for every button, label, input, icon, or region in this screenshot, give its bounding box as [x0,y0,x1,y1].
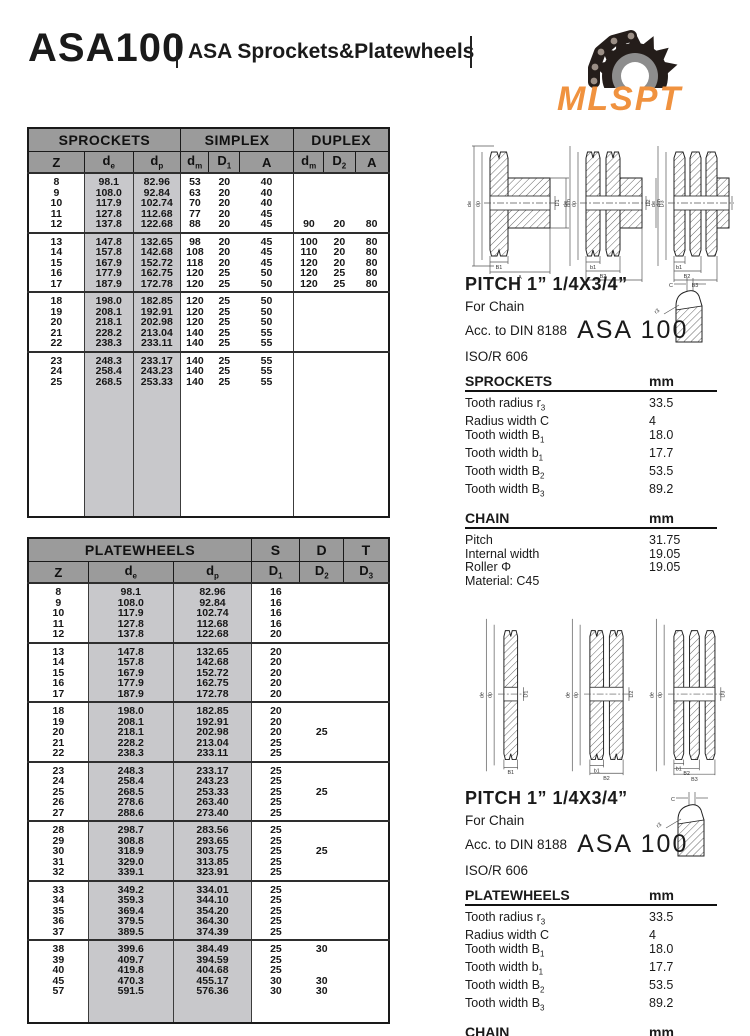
cell: 20 [252,657,300,668]
cell: 20 [209,173,240,188]
table-row: 24258.4243.231402555 [28,366,389,377]
table-group: 13147.8132.652014157.8142.682015167.9152… [28,643,389,703]
cell: 142.68 [173,657,251,668]
cell [28,389,84,517]
cell: 25 [252,895,300,906]
cell [323,173,355,188]
column-header: A [355,152,389,174]
cell [355,328,389,339]
table-row: 10117.9102.74702040 [28,198,389,209]
table-row: 30318.9303.752525 [28,846,389,857]
cell: 576.36 [173,986,251,999]
cell: 177.9 [84,268,133,279]
for-chain-label: For Chain [465,299,717,314]
cell [355,338,389,352]
cell: 55 [240,338,294,352]
cell: 8 [28,173,84,188]
pitch-title: PITCH 1” 1/4X3/4” [465,788,717,809]
table-group: 38399.6384.49253039409.7394.592540419.84… [28,940,389,999]
cell: 40 [240,173,294,188]
cell: 389.5 [88,927,173,941]
cell: 117.9 [88,608,173,619]
cell: 344.10 [173,895,251,906]
sprockets-spec-block: PITCH 1” 1/4X3/4” For Chain Acc. to DIN … [465,274,717,588]
table-row: 32339.1323.9125 [28,867,389,881]
cell: 132.65 [133,233,180,248]
cell: 334.01 [173,881,251,896]
cell: 98.1 [88,583,173,598]
cell [28,999,88,1023]
column-header: D2 [300,562,344,584]
table-row: 17187.9172.7812025501202580 [28,279,389,293]
cell [323,338,355,352]
cell: 30 [252,986,300,999]
cell: 20 [252,643,300,658]
cell [344,976,389,987]
brand-logo: MLSPT [553,20,703,119]
asa-label: ASA 100 [577,830,688,859]
cell: 399.6 [88,940,173,955]
cell: 238.3 [88,748,173,762]
cell: 45 [240,219,294,233]
spec-row: Tooth width B118.0 [465,429,717,447]
column-header: A [240,152,294,174]
cell: 13 [28,643,88,658]
spec-row: Tooth width B253.5 [465,979,717,997]
table-row: 27288.6273.4025 [28,808,389,822]
spec-list: Pitch31.75Internal width19.05Roller Φ19.… [465,534,717,588]
cell: 120 [294,268,324,279]
cell: 323.91 [173,867,251,881]
spec-row: Radius width C4 [465,415,717,429]
cell [294,389,324,517]
spec-section-header: SPROCKETS mm [465,373,717,392]
column-header: Z [28,152,84,174]
table-row: 23248.3233.1725 [28,762,389,777]
asa-label: ASA 100 [577,316,688,345]
cell: 233.11 [133,338,180,352]
cell [344,955,389,966]
cell: 40 [28,965,88,976]
for-chain-label: For Chain [465,813,717,828]
cell [300,867,344,881]
table-group: 28298.7283.562529308.8293.652530318.9303… [28,821,389,881]
title-divider [176,36,178,68]
cell: 120 [294,279,324,293]
cell: 34 [28,895,88,906]
cell: 45 [240,233,294,248]
cell: 339.1 [88,867,173,881]
cell [300,927,344,941]
cell: 278.6 [88,797,173,808]
cell [344,689,389,703]
cell: 142.68 [133,247,180,258]
table-row: 16177.9162.7512025501202580 [28,268,389,279]
table-section-header: S [252,538,300,562]
cell [355,173,389,188]
cell: 318.9 [88,846,173,857]
cell: 27 [28,808,88,822]
table-row: 24258.4243.2325 [28,776,389,787]
dim-label: de [467,201,473,207]
cell: 25 [252,821,300,836]
table-spacer [28,389,389,517]
cell [344,916,389,927]
table-group: 13147.8132.65982045100208014157.8142.681… [28,233,389,293]
table-group: 18198.0182.85120255019208.1192.911202550… [28,292,389,352]
cell [300,906,344,917]
cell: 18 [28,292,84,307]
subtitle-divider [470,36,472,68]
spec-row: Tooth width b117.7 [465,447,717,465]
cell: 157.8 [88,657,173,668]
cell: 288.6 [88,808,173,822]
cell: 102.74 [173,608,251,619]
column-header: de [88,562,173,584]
cell: 25 [252,776,300,787]
cell: 263.40 [173,797,251,808]
cell [344,619,389,630]
pitch-title: PITCH 1” 1/4X3/4” [465,274,717,295]
cell [344,999,389,1023]
table-row: 17187.9172.7820 [28,689,389,703]
table-group: 23248.3233.172524258.4243.232525268.5253… [28,762,389,822]
cell: 268.5 [84,377,133,390]
cell [294,338,324,352]
cell [323,377,355,390]
spec-row: Internal width19.05 [465,548,717,562]
cell [300,999,344,1023]
cell: 120 [180,279,209,293]
table-row: 20218.1202.982025 [28,727,389,738]
cell: 157.8 [84,247,133,258]
table-row: 12137.8122.6820 [28,629,389,643]
cell: 147.8 [84,233,133,248]
cell [300,678,344,689]
table-row: 34359.3344.1025 [28,895,389,906]
table-section-header: SIMPLEX [180,128,294,152]
cell: 98 [180,233,209,248]
cell: 20 [209,198,240,209]
cell: 187.9 [88,689,173,703]
cell: 14 [28,247,84,258]
cell: 98.1 [84,173,133,188]
cell [344,678,389,689]
dim-label: D2 [629,691,635,698]
cell: 82.96 [133,173,180,188]
cell: 55 [240,366,294,377]
table-spacer [28,999,389,1023]
cell: 120 [180,268,209,279]
catalog-page: ASA100 ASA Sprockets&Platewheels [0,0,750,1036]
cell: 17 [28,279,84,293]
cell: 20 [252,689,300,703]
dim-label: b1 [676,265,682,271]
table-section-header: DUPLEX [294,128,389,152]
cell: 14 [28,657,88,668]
cell: 25 [300,727,344,738]
cell: 25 [209,268,240,279]
cell: 55 [240,352,294,367]
table-row: 40419.8404.6825 [28,965,389,976]
table-group: 898.182.965320409108.092.8463204010117.9… [28,173,389,233]
cell: 162.75 [133,268,180,279]
cell: 80 [355,219,389,233]
cell: 122.68 [133,219,180,233]
cell: 17 [28,689,88,703]
cell [344,846,389,857]
cell: 25 [209,279,240,293]
sprocket-sections-drawing: de dp D1 dm B1 A de dp D2 dm b1 B2 A [428,138,738,290]
cell: 30 [300,986,344,999]
cell [355,307,389,318]
cell: 283.56 [173,821,251,836]
cell: 22 [28,748,88,762]
cell: 248.3 [84,352,133,367]
column-header: D2 [323,152,355,174]
dim-label: D3 [721,691,727,698]
cell: 122.68 [173,629,251,643]
cell: 182.85 [133,292,180,307]
spec-row: Tooth radius r333.5 [465,397,717,415]
cell: 298.7 [88,821,173,836]
column-header: dp [173,562,251,584]
cell: 16 [252,608,300,619]
cell: 25 [300,787,344,798]
cell: 177.9 [88,678,173,689]
cell: 140 [180,366,209,377]
platewheels-spec-block: PITCH 1” 1/4X3/4” For Chain Acc. to DIN … [465,788,717,1036]
cell [344,927,389,941]
cell [84,389,133,517]
cell: 16 [252,583,300,598]
cell: 404.68 [173,965,251,976]
dim-label: B3 [691,777,698,783]
cell [344,808,389,822]
cell [344,836,389,847]
cell: 591.5 [88,986,173,999]
cell: 18 [28,702,88,717]
table-row: 33349.2334.0125 [28,881,389,896]
cell [344,738,389,749]
cell [294,198,324,209]
cell [300,797,344,808]
cell [300,857,344,868]
cell [323,198,355,209]
cell [323,317,355,328]
cell [344,598,389,609]
cell: 25 [252,808,300,822]
cell: 20 [209,233,240,248]
cell [323,389,355,517]
cell: 248.3 [88,762,173,777]
cell [294,307,324,318]
table-row: 21228.2213.041402555 [28,328,389,339]
cell: 162.75 [173,678,251,689]
cell [344,940,389,955]
cell: 198.0 [88,702,173,717]
cell: 50 [240,292,294,307]
cell: 20 [252,702,300,717]
cell [344,583,389,598]
cell: 10 [28,608,88,619]
cell: 22 [28,338,84,352]
dim-label: de [651,201,657,207]
cell: 233.17 [133,352,180,367]
spec-row: Pitch31.75 [465,534,717,548]
cell [300,608,344,619]
spec-section-header: PLATEWHEELS mm [465,887,717,906]
cell: 253.33 [133,377,180,390]
cell: 117.9 [84,198,133,209]
cell [300,748,344,762]
table-row: 22238.3233.111402555 [28,338,389,352]
cell: 70 [180,198,209,209]
cell [300,598,344,609]
cell [300,895,344,906]
dim-label: de [649,692,655,698]
cell [300,965,344,976]
cell: 238.3 [84,338,133,352]
table-row: 36379.5364.3025 [28,916,389,927]
cell: 233.17 [173,762,251,777]
cell [344,657,389,668]
cell: 33 [28,881,88,896]
cell: 28 [28,821,88,836]
cell [355,292,389,307]
spec-row: Tooth width B389.2 [465,483,717,501]
cell [300,619,344,630]
cell: 172.78 [133,279,180,293]
cell: 26 [28,797,88,808]
cell: 25 [252,940,300,955]
cell: 30 [28,846,88,857]
cell [294,328,324,339]
table-row: 38399.6384.492530 [28,940,389,955]
platewheels-table: PLATEWHEELSSDTZdedpD1D2D3898.182.9616910… [27,537,390,1024]
cell: 359.3 [88,895,173,906]
table-row: 18198.0182.851202550 [28,292,389,307]
cell [344,906,389,917]
cell: 140 [180,352,209,367]
cell [355,188,389,199]
table-group: 18198.0182.852019208.1192.912020218.1202… [28,702,389,762]
cell [133,389,180,517]
cell: 187.9 [84,279,133,293]
dim-label: D3 [660,200,666,207]
cell: 88 [180,219,209,233]
cell [300,583,344,598]
table-row: 23248.3233.171402555 [28,352,389,367]
sprockets-table: SPROCKETSSIMPLEXDUPLEXZdedpdmD1AdmD2A898… [27,127,390,518]
din-standard-label: Acc. to DIN 8188 [465,323,567,338]
cell [355,352,389,367]
cell: 243.23 [173,776,251,787]
cell: 25 [209,366,240,377]
cell: 8 [28,583,88,598]
cell: 25 [252,797,300,808]
cell [323,188,355,199]
cell: 273.40 [173,808,251,822]
iso-standard-label: ISO/R 606 [465,349,717,364]
cell: 25 [209,377,240,390]
cell: 25 [252,748,300,762]
column-header: Z [28,562,88,584]
cell: 25 [323,268,355,279]
cell [323,292,355,307]
cell [344,629,389,643]
cell: 20 [209,247,240,258]
cell: 349.2 [88,881,173,896]
cell [294,292,324,307]
cell [344,717,389,728]
table-row: 9108.092.84632040 [28,188,389,199]
cell: 12 [28,219,84,233]
spec-row: Tooth width B118.0 [465,943,717,961]
cell: 140 [180,338,209,352]
dim-label: dp [488,692,494,698]
brand-logo-text: MLSPT [557,80,683,114]
cell [344,895,389,906]
cell [294,352,324,367]
cell [300,657,344,668]
cell [344,867,389,881]
cell [300,881,344,896]
cell: 233.11 [173,748,251,762]
cell [344,797,389,808]
table-row: 16177.9162.7520 [28,678,389,689]
cell: 38 [28,940,88,955]
dim-label: D1 [523,691,529,698]
dim-label: dp [476,201,482,207]
cell [300,689,344,703]
cell [294,366,324,377]
cell: 25 [252,916,300,927]
cell: 20 [28,317,84,328]
spec-list: Tooth radius r333.5Radius width C4Tooth … [465,397,717,501]
cell: 80 [355,279,389,293]
cell: 132.65 [173,643,251,658]
table-row: 898.182.96532040 [28,173,389,188]
table-row: 19208.1192.911202550 [28,307,389,318]
cell [294,173,324,188]
table-group: 23248.3233.17140255524258.4243.231402555… [28,352,389,390]
cell: 218.1 [84,317,133,328]
cell: 20 [323,233,355,248]
cell: 25 [209,292,240,307]
cell: 182.85 [173,702,251,717]
cell [300,955,344,966]
column-header: dm [294,152,324,174]
cell [344,965,389,976]
cell: 218.1 [88,727,173,738]
dim-label: dp [658,692,664,698]
table-row: 10117.9102.7416 [28,608,389,619]
cell [344,986,389,999]
cell [173,999,251,1023]
cell: 137.8 [88,629,173,643]
cell [344,668,389,679]
cell [344,776,389,787]
cell [209,389,240,517]
cell: 25 [252,846,300,857]
cell: 20 [252,629,300,643]
cell [300,808,344,822]
cell: 120 [180,292,209,307]
table-group: 33349.2334.012534359.3344.102535369.4354… [28,881,389,941]
cell: 25 [209,352,240,367]
table-row: 898.182.9616 [28,583,389,598]
